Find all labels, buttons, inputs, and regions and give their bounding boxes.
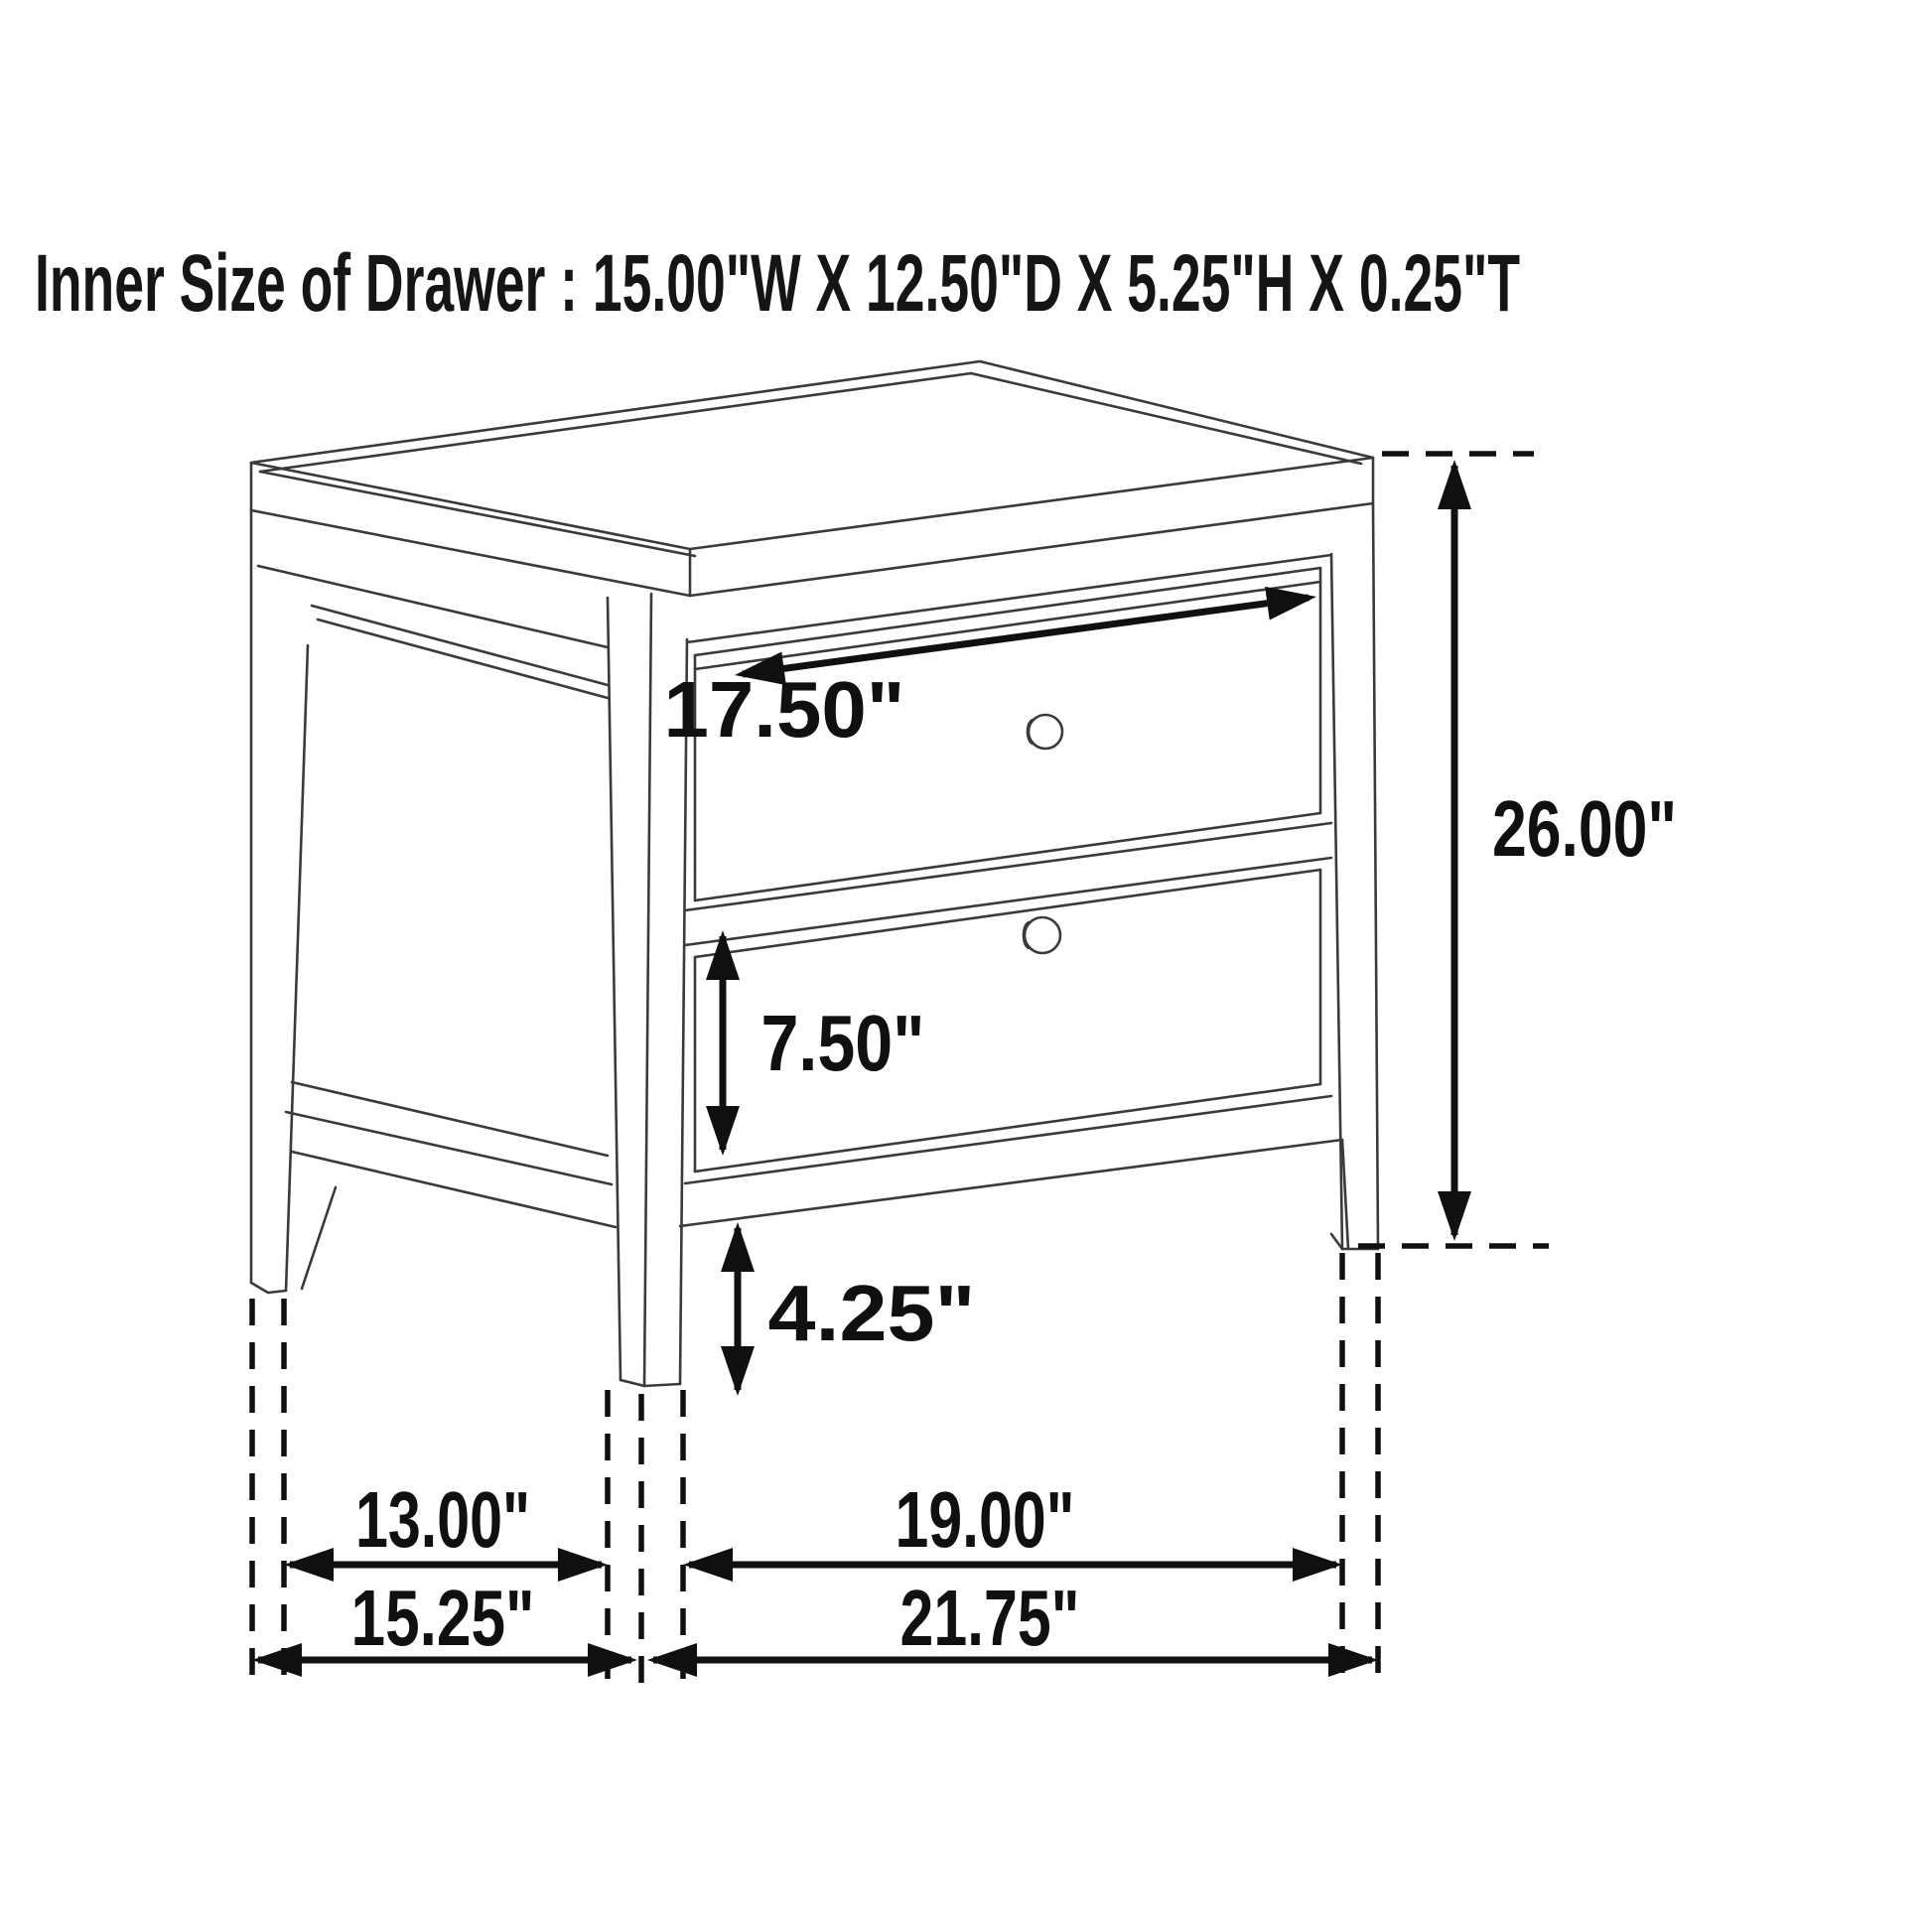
back-left-leg bbox=[251, 510, 336, 1293]
nightstand-drawing bbox=[251, 361, 1378, 1386]
dimension-floor-clearance: 4.25" bbox=[721, 1222, 976, 1396]
label-overall-depth: 15.25" bbox=[351, 1574, 535, 1662]
dimension-annotations: 17.50" 7.50" 4.25" 26.00" bbox=[252, 454, 1677, 1683]
label-side-leg-spacing: 13.00" bbox=[355, 1475, 530, 1564]
dimension-drawer-face-width: 17.50" bbox=[664, 580, 1319, 754]
label-floor-clearance: 4.25" bbox=[768, 1269, 976, 1357]
knob-bottom-drawer bbox=[1024, 917, 1060, 953]
label-drawer-face-width: 17.50" bbox=[664, 665, 905, 754]
dimension-overall-width: 21.75" bbox=[647, 1574, 1378, 1677]
left-side-panel bbox=[258, 566, 616, 1227]
label-lower-drawer-height: 7.50" bbox=[761, 999, 925, 1087]
dimension-front-leg-spacing: 19.00" bbox=[683, 1475, 1342, 1582]
dimension-lower-drawer-height: 7.50" bbox=[706, 930, 925, 1156]
label-front-leg-spacing: 19.00" bbox=[896, 1475, 1075, 1564]
label-overall-height: 26.00" bbox=[1492, 784, 1677, 873]
dimension-overall-height: 26.00" bbox=[1438, 460, 1677, 1241]
label-overall-width: 21.75" bbox=[900, 1574, 1080, 1662]
dimension-side-leg-spacing: 13.00" bbox=[284, 1475, 608, 1582]
page-title: Inner Size of Drawer : 15.00"W X 12.50"D… bbox=[35, 238, 1520, 329]
dimension-diagram-page: Inner Size of Drawer : 15.00"W X 12.50"D… bbox=[0, 0, 1932, 1932]
tabletop bbox=[251, 361, 1373, 596]
dimension-overall-depth: 15.25" bbox=[252, 1574, 637, 1677]
knob-top-drawer bbox=[1028, 715, 1062, 749]
